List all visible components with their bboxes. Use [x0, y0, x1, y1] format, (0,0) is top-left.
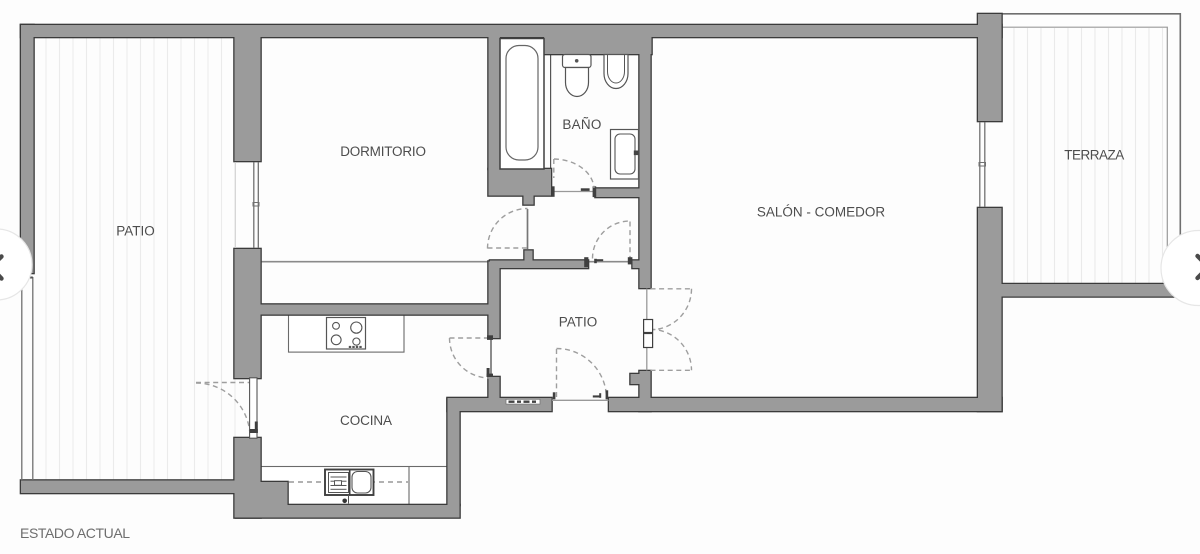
svg-text:TERRAZA: TERRAZA: [1064, 147, 1124, 162]
svg-text:BAÑO: BAÑO: [562, 117, 601, 132]
svg-text:COCINA: COCINA: [340, 413, 392, 428]
svg-text:PATIO: PATIO: [116, 223, 155, 238]
svg-text:ESTADO ACTUAL: ESTADO ACTUAL: [20, 525, 130, 541]
svg-text:PATIO: PATIO: [559, 314, 598, 329]
svg-text:SALÓN - COMEDOR: SALÓN - COMEDOR: [757, 204, 886, 219]
svg-text:DORMITORIO: DORMITORIO: [340, 144, 426, 159]
